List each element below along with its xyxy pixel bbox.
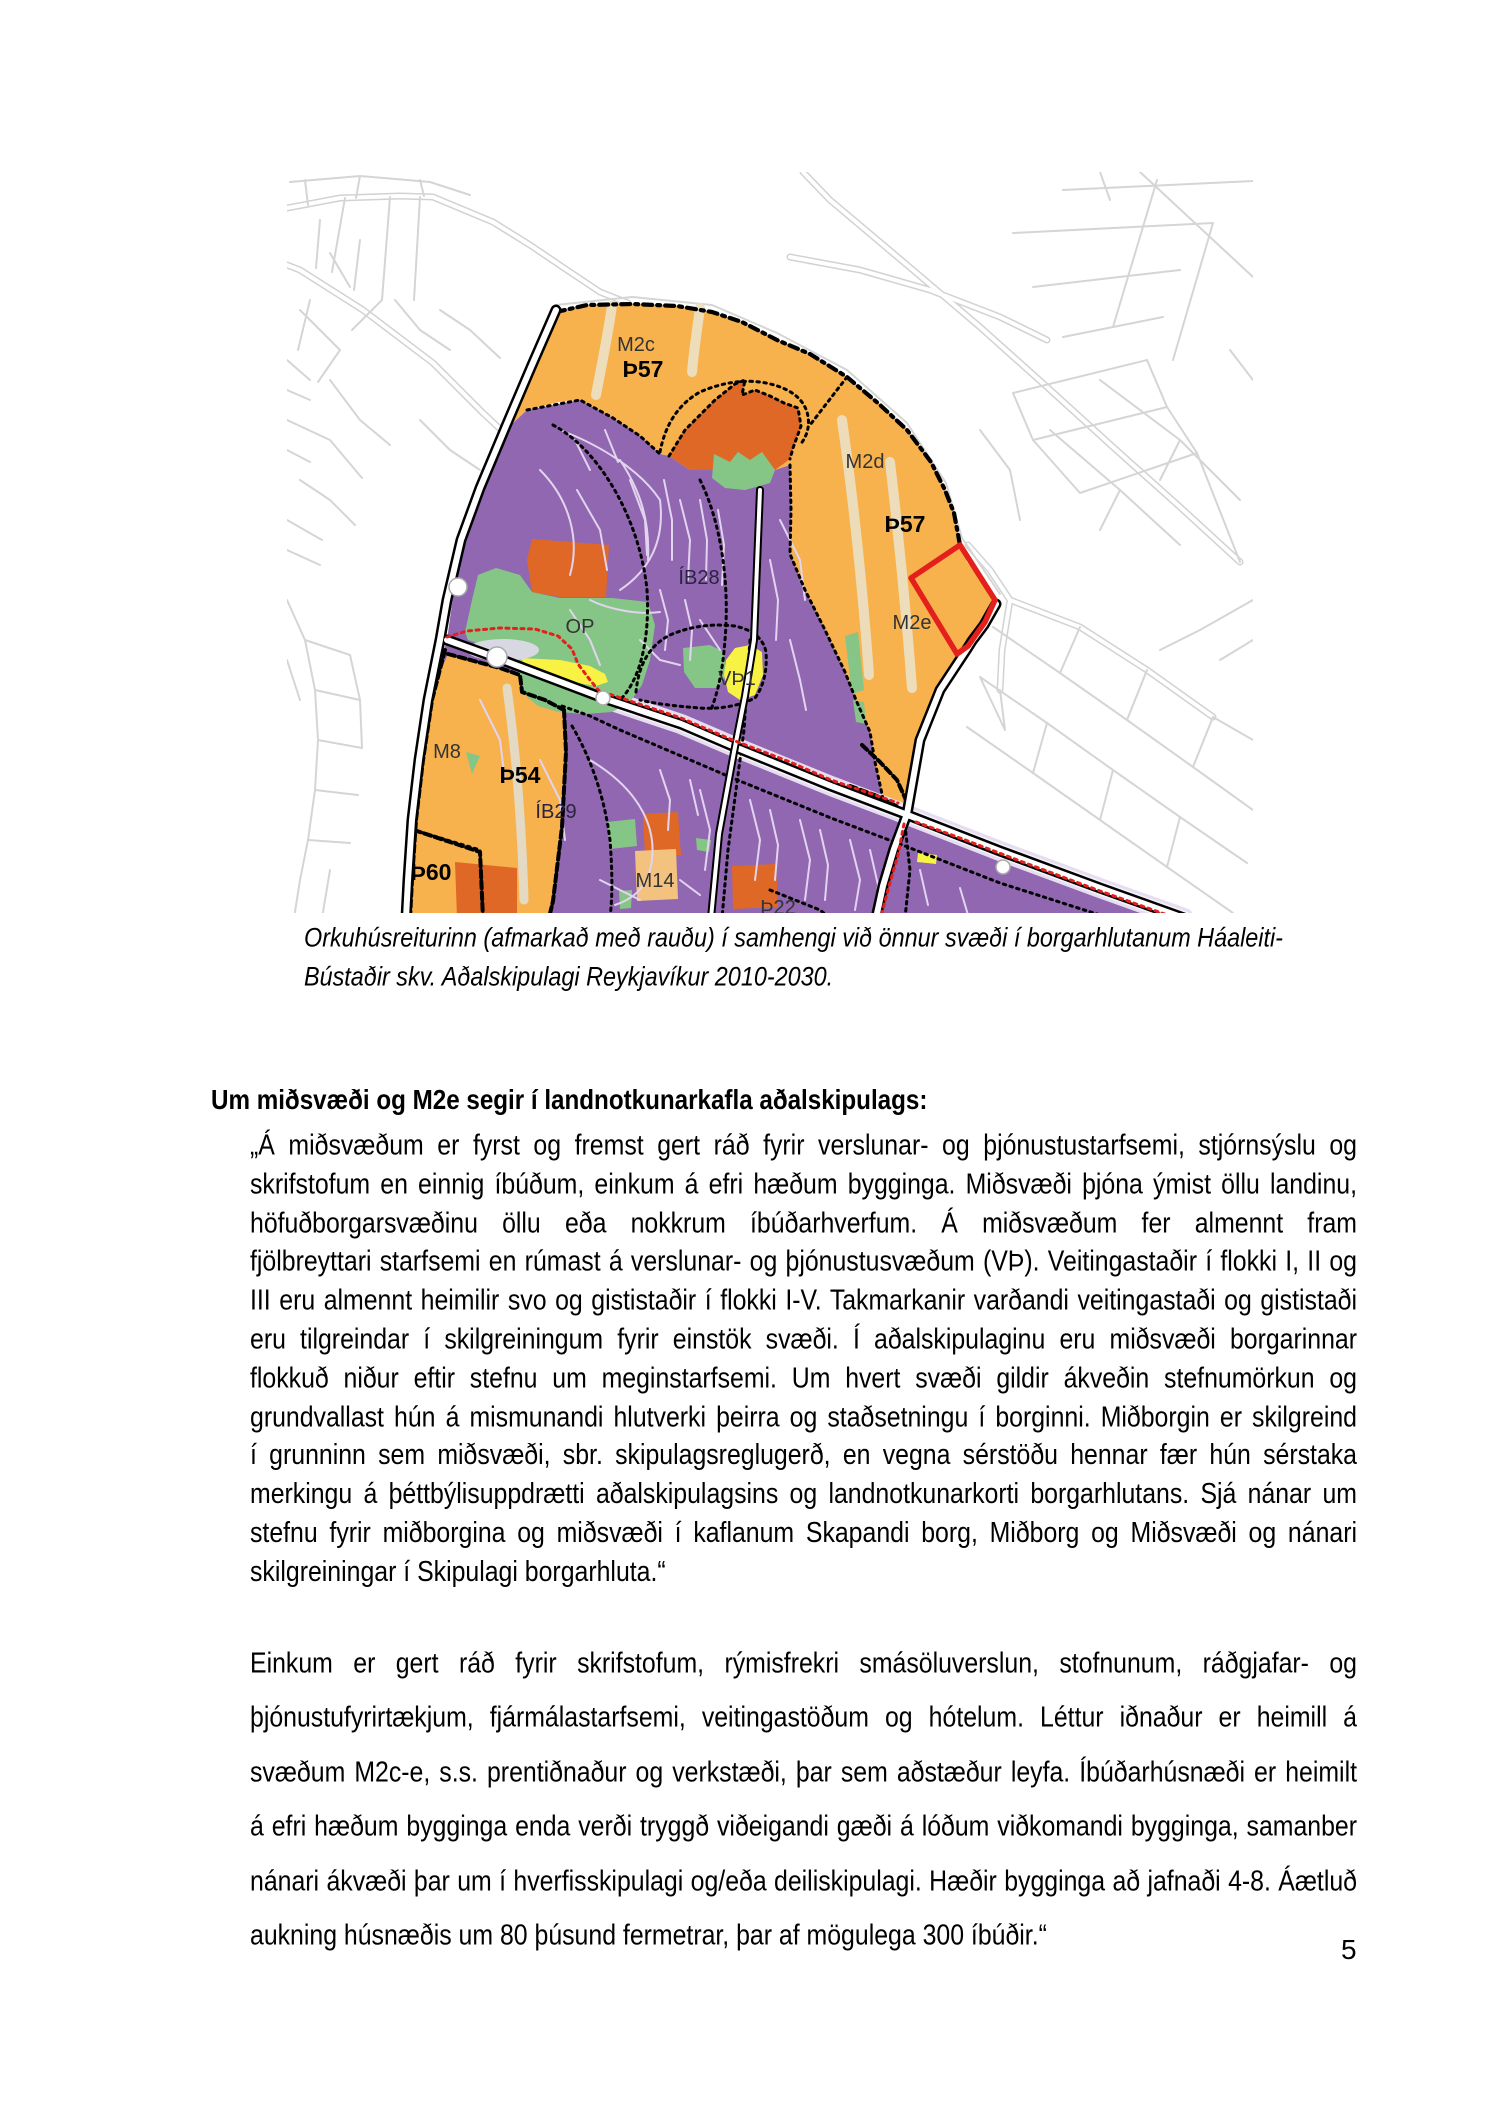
svg-text:M14: M14 <box>636 870 675 892</box>
svg-text:Þ54: Þ54 <box>500 762 541 788</box>
svg-text:M2e: M2e <box>893 612 932 634</box>
svg-text:Þ57: Þ57 <box>885 511 926 537</box>
svg-text:Þ57: Þ57 <box>623 356 664 382</box>
svg-text:ÍB29: ÍB29 <box>535 800 576 823</box>
svg-text:ÍB28: ÍB28 <box>678 566 719 589</box>
svg-text:VÞ1: VÞ1 <box>718 668 756 690</box>
svg-text:OP: OP <box>566 616 595 638</box>
svg-text:Þ22: Þ22 <box>760 897 796 918</box>
svg-text:M2c: M2c <box>617 334 655 356</box>
svg-text:M8: M8 <box>433 741 461 763</box>
svg-text:Þ60: Þ60 <box>411 859 452 885</box>
svg-text:M2d: M2d <box>846 451 885 473</box>
